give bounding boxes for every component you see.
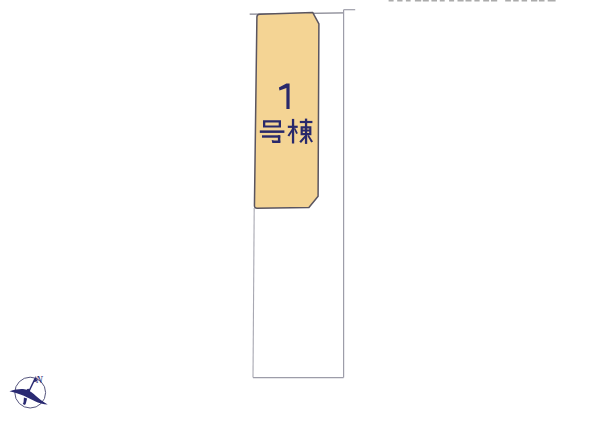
svg-text:N: N (35, 374, 44, 385)
